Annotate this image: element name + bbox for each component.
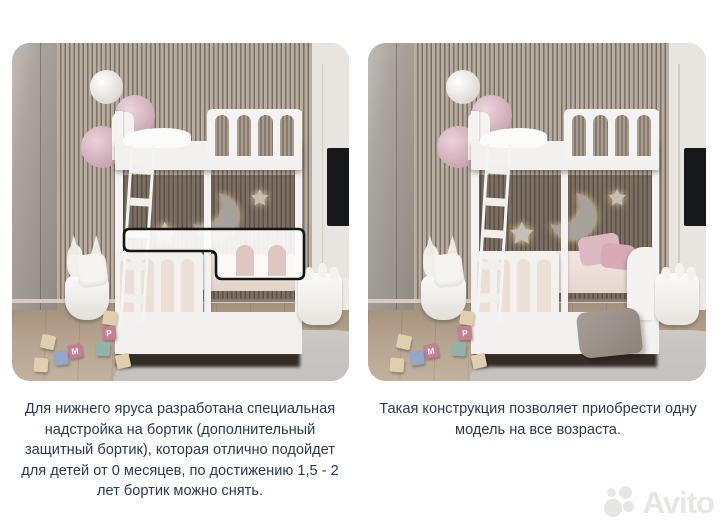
avito-wordmark: Avito bbox=[643, 486, 714, 519]
ladder-rung bbox=[485, 198, 506, 207]
wardrobe-seam bbox=[396, 43, 397, 310]
ladder-rung bbox=[483, 230, 504, 239]
basket-pom bbox=[661, 267, 671, 282]
ladder-rung bbox=[487, 165, 508, 174]
gray-floor-pillow bbox=[575, 307, 642, 359]
upper-bunk-rail bbox=[564, 109, 659, 160]
pom-pom-white bbox=[446, 70, 480, 104]
toy-block bbox=[452, 341, 467, 356]
product-card: Р М bbox=[0, 0, 720, 525]
caption-left: Для нижнего яруса разработана специальна… bbox=[8, 399, 352, 502]
wardrobe bbox=[368, 43, 414, 310]
basket-pillow bbox=[431, 252, 465, 289]
photo-bed-with-guard-rail: Р М bbox=[12, 43, 349, 381]
toy-block bbox=[471, 353, 488, 370]
star-icon bbox=[510, 222, 533, 244]
toy-block: М bbox=[423, 343, 439, 359]
ladder-rung bbox=[480, 294, 501, 303]
star-icon bbox=[608, 189, 625, 206]
toy-basket bbox=[655, 273, 699, 325]
arch-cutout bbox=[593, 115, 607, 156]
toy-block bbox=[390, 358, 405, 373]
caption-right: Такая конструкция позволяет приобрести о… bbox=[364, 399, 712, 440]
toy-block: Р bbox=[458, 325, 473, 340]
arch-cutout bbox=[615, 115, 629, 156]
toy-block bbox=[459, 310, 475, 326]
ladder-rung bbox=[482, 262, 503, 271]
toy-block bbox=[409, 350, 425, 366]
arch-cutout bbox=[637, 115, 651, 156]
arch-cutout bbox=[572, 115, 586, 156]
toy-block bbox=[396, 334, 413, 351]
wall-molding bbox=[678, 64, 680, 281]
moon-icon bbox=[549, 194, 596, 241]
basket-pom bbox=[675, 263, 685, 278]
basket-pom bbox=[686, 267, 696, 282]
bed-post bbox=[561, 155, 568, 327]
tv-screen bbox=[684, 148, 706, 226]
avito-watermark: Avito bbox=[604, 486, 714, 519]
avito-logo-icon bbox=[604, 486, 640, 519]
wooden-blocks: Р М bbox=[382, 307, 524, 375]
photo-bed-all-ages: Р М bbox=[368, 43, 706, 381]
guard-rail-highlight-outline bbox=[12, 43, 349, 381]
